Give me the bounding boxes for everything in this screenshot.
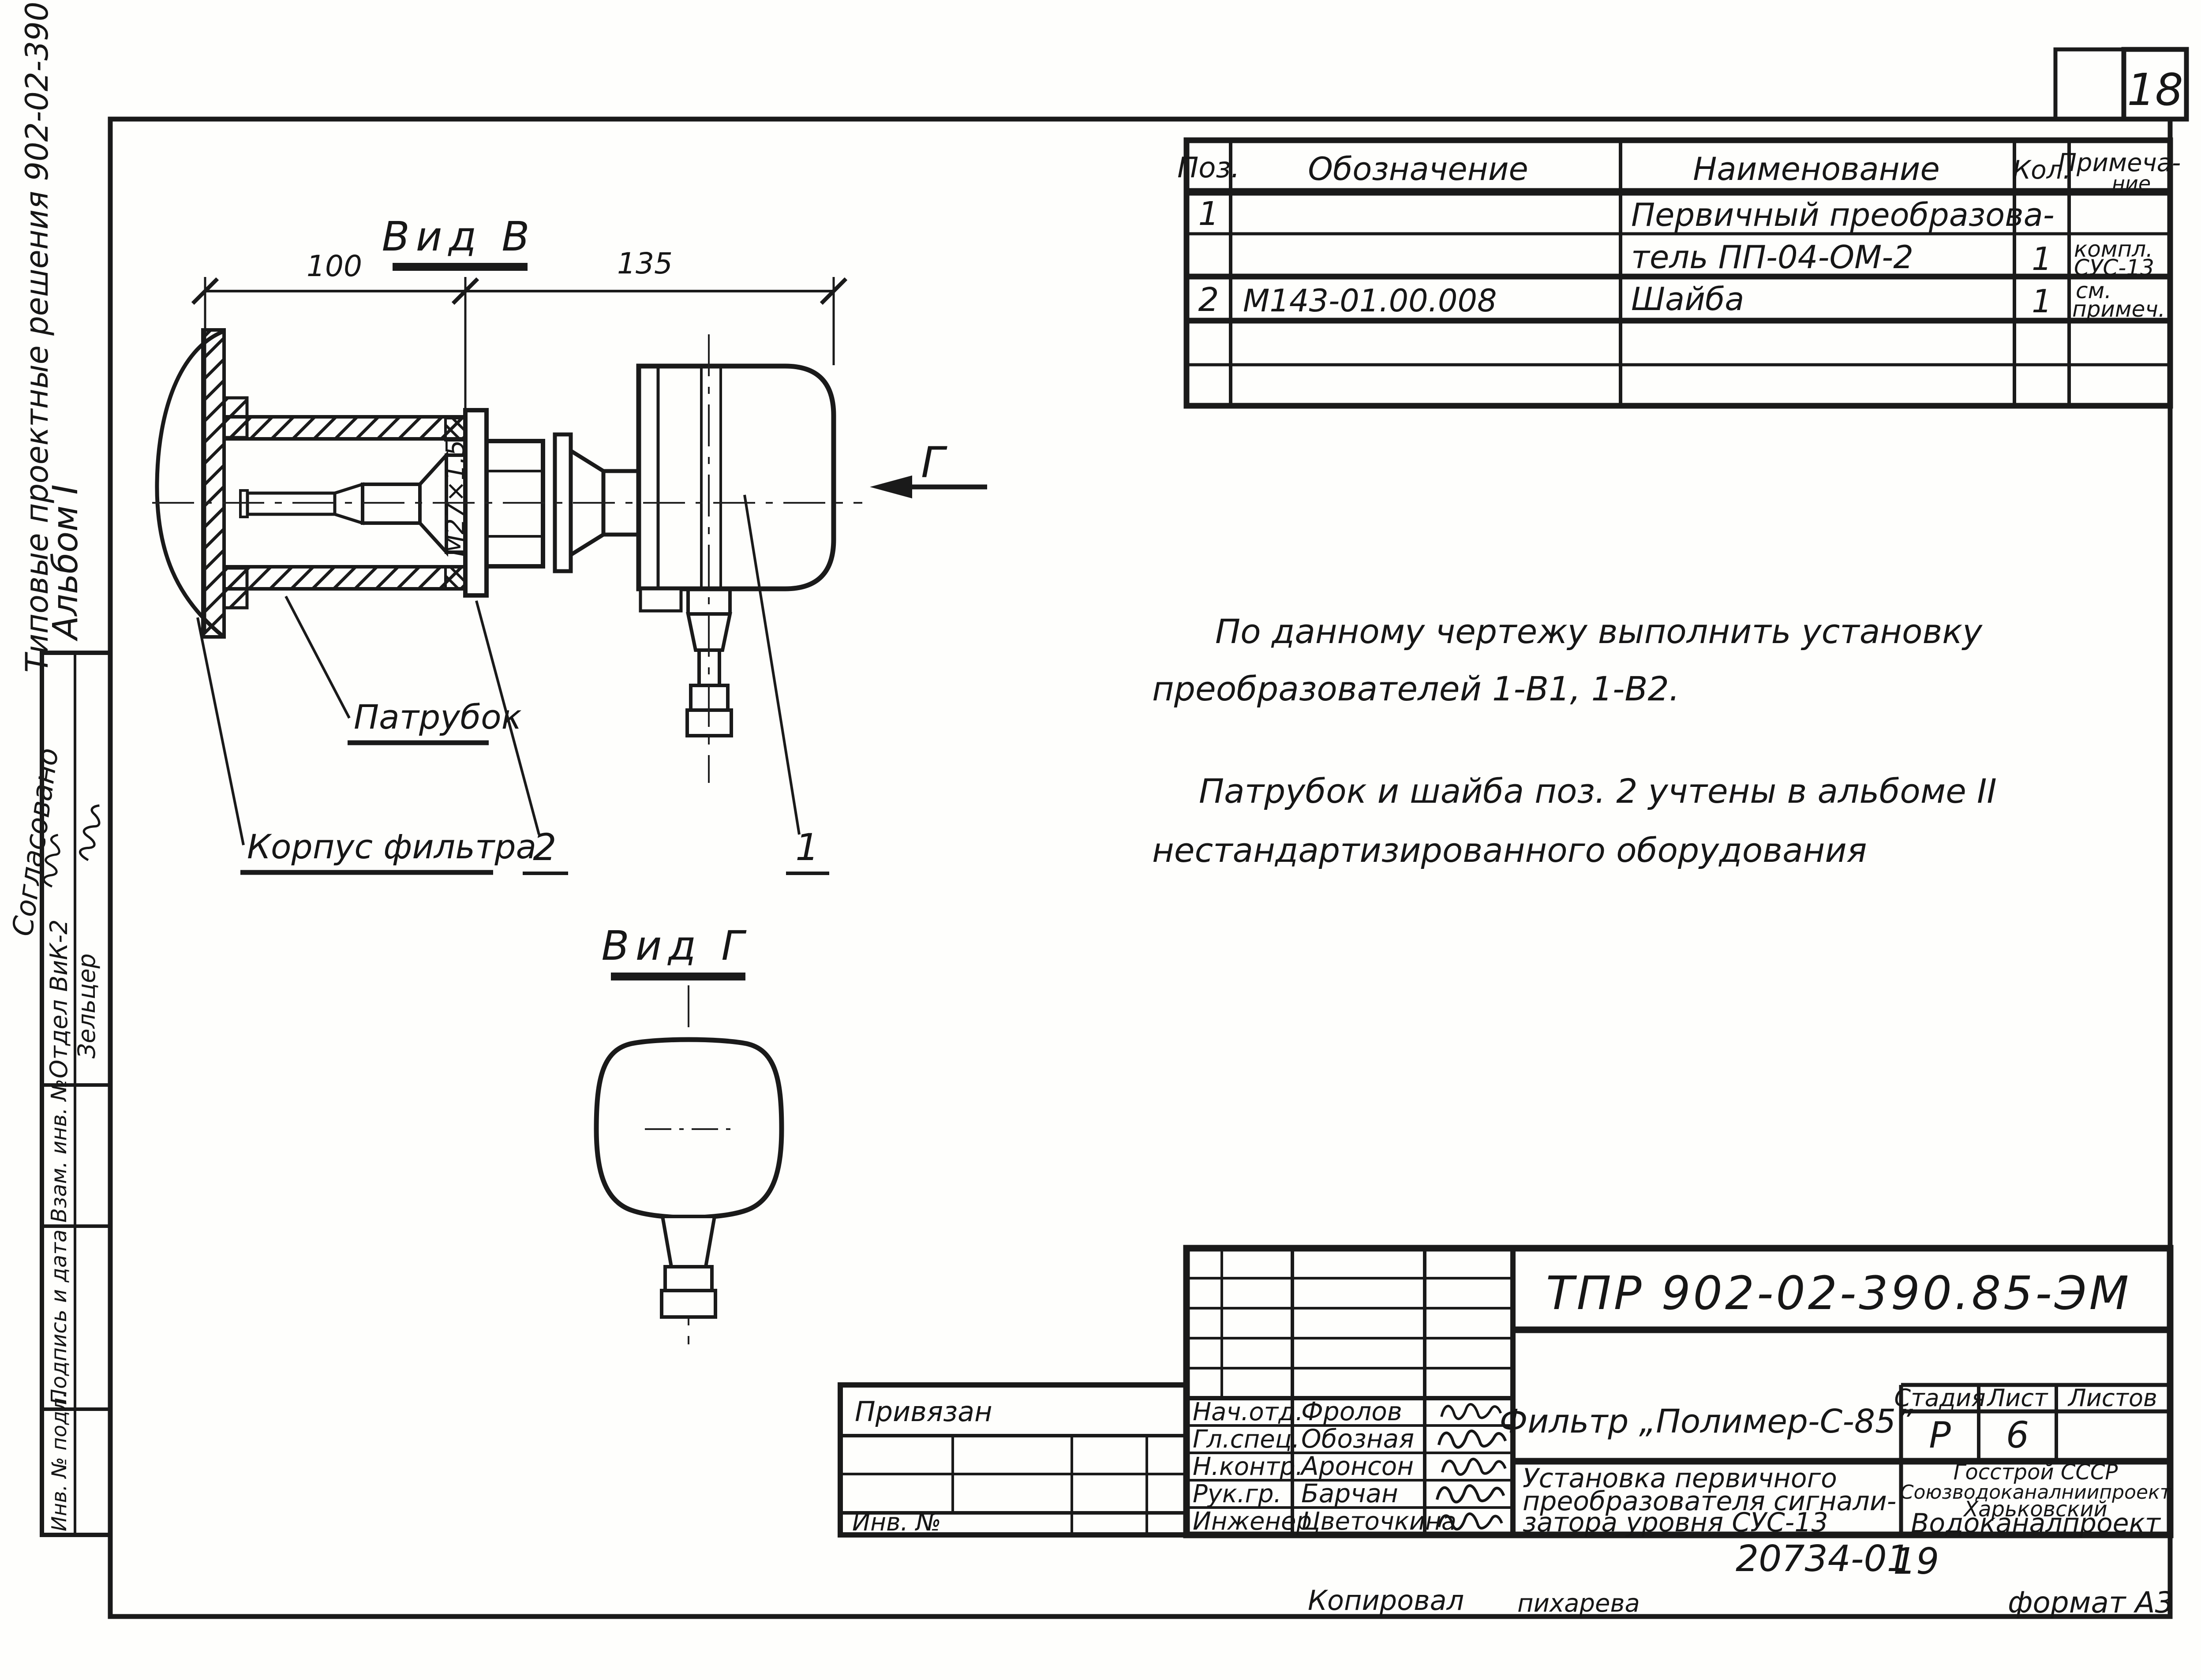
dept-person-name: Зельцер xyxy=(73,954,101,1059)
staff-role-4: Инженер xyxy=(1193,1507,1312,1536)
filter-wall xyxy=(203,330,224,637)
col-header-designation: Обозначение xyxy=(1308,150,1528,187)
table-row: 1 Первичный преобразова- xyxy=(1198,195,2054,233)
blueprint-canvas: 18 Поз. Обозначение Наименование Кол. Пр… xyxy=(0,0,2201,1680)
footer: 20734-01 19 Копировал пихарева формат А3 xyxy=(1308,1538,2174,1620)
signature xyxy=(1439,1431,1505,1447)
dept-label: Отдел ВиК-2 xyxy=(45,919,73,1078)
note-line-4: нестандартизированного оборудования xyxy=(1152,831,1867,870)
staff-name-2: Аронсон xyxy=(1299,1451,1414,1481)
transducer-body xyxy=(639,366,834,589)
row2-note-2: СУС-13 xyxy=(2074,255,2154,281)
col-header-note-2: ние xyxy=(2112,172,2151,195)
page-number-box: 18 xyxy=(2055,49,2186,119)
copied-by-name: пихарева xyxy=(1517,1589,1640,1618)
copied-label: Копировал xyxy=(1308,1584,1464,1616)
footer-sheet-number: 19 xyxy=(1893,1541,1939,1583)
stage-value: Р xyxy=(1929,1414,1951,1456)
row1-pos: 1 xyxy=(1198,195,1219,233)
title-block: ТПР 902-02-390.85-ЭМ Нач.отд. Фролов Гл.… xyxy=(1187,1248,2172,1539)
dim-135: 135 xyxy=(617,247,673,281)
col-header-name: Наименование xyxy=(1693,150,1940,187)
page-number: 18 xyxy=(2127,64,2183,116)
staff-name-0: Фролов xyxy=(1301,1396,1402,1426)
staff-row: Н.контр. Аронсон xyxy=(1193,1451,1505,1481)
row3-pos: 2 xyxy=(1198,281,1219,319)
transducer-head-front xyxy=(596,1040,782,1218)
album-caption: Альбом I xyxy=(46,484,86,642)
signature xyxy=(1442,1459,1505,1474)
view-direction-marker: Г xyxy=(870,438,987,498)
row1-name: Первичный преобразова- xyxy=(1631,196,2055,233)
row3-designation: М143-01.00.008 xyxy=(1243,283,1497,319)
notes: По данному чертежу выполнить установку п… xyxy=(1152,612,1997,870)
row2-qty: 1 xyxy=(2032,240,2052,277)
table-row: 2 М143-01.00.008 Шайба 1 см. примеч. xyxy=(1198,278,2165,322)
note-line-3: Патрубок и шайба поз. 2 учтены в альбоме… xyxy=(1199,771,1997,811)
staff-name-4: Цветочкина xyxy=(1301,1507,1456,1536)
description-line-3: затора уровня СУС-13 xyxy=(1523,1507,1828,1538)
staff-role-0: Нач.отд. xyxy=(1193,1398,1303,1426)
row2-name: тель ПП-04-ОМ-2 xyxy=(1631,239,1913,276)
housing-label: Корпус фильтра xyxy=(247,827,536,866)
staff-role-1: Гл.спец. xyxy=(1193,1425,1300,1454)
format-label: формат А3 xyxy=(2008,1586,2174,1620)
staff-name-1: Обозная xyxy=(1301,1424,1414,1454)
staff-role-2: Н.контр. xyxy=(1193,1452,1303,1481)
footer-doc-number: 20734-01 xyxy=(1736,1538,1910,1580)
dim-100: 100 xyxy=(307,249,362,283)
drawing-sheet: 18 Поз. Обозначение Наименование Кол. Пр… xyxy=(0,0,2201,1680)
staff-row: Рук.гр. Барчан xyxy=(1193,1478,1504,1508)
view-g-title: Вид Г xyxy=(601,922,750,969)
pipe-label: Патрубок xyxy=(354,697,522,737)
sign-date-label: Подпись и дата xyxy=(47,1229,71,1405)
note-line-1: По данному чертежу выполнить установку xyxy=(1215,612,1983,651)
agreed-label: Согласовано xyxy=(7,746,65,938)
item-2-callout: 2 xyxy=(533,826,556,869)
staff-row: Инженер Цветочкина xyxy=(1193,1507,1502,1536)
sheet-value: 6 xyxy=(2006,1414,2029,1456)
view-b-title: Вид В xyxy=(382,213,536,260)
signature xyxy=(1437,1485,1504,1502)
inv-orig-label: Инв. № подл. xyxy=(47,1392,71,1531)
stage-label: Стадия xyxy=(1894,1384,1985,1412)
view-direction-label: Г xyxy=(921,438,947,487)
doc-number: ТПР 902-02-390.85-ЭМ xyxy=(1546,1266,2131,1320)
signature xyxy=(77,803,105,861)
pipe-wall-top xyxy=(224,417,465,439)
sheet-label: Лист xyxy=(1987,1384,2048,1412)
arrowhead xyxy=(870,475,912,498)
org-line-4: Водоканалпроект xyxy=(1911,1508,2161,1539)
left-margin: Типовые проектные решения 902-02-390.85 … xyxy=(7,0,110,1535)
staff-row: Гл.спец. Обозная xyxy=(1193,1424,1505,1454)
staff-row: Нач.отд. Фролов xyxy=(1193,1396,1501,1426)
note-line-2: преобразователей 1-В1, 1-В2. xyxy=(1152,669,1680,708)
row3-name: Шайба xyxy=(1631,281,1744,318)
view-g: Вид Г xyxy=(596,922,782,1344)
project-name: Фильтр „Полимер-С-85” xyxy=(1500,1403,1913,1441)
row3-note-2: примеч. xyxy=(2072,296,2165,322)
parts-table: Поз. Обозначение Наименование Кол. Приме… xyxy=(1177,140,2181,406)
view-b: Вид В 100 135 М27×1,5 xyxy=(152,213,987,873)
sheets-label: Листов xyxy=(2067,1384,2157,1412)
staff-name-3: Барчан xyxy=(1301,1478,1398,1508)
attached-label: Привязан xyxy=(855,1396,992,1428)
pipe-wall-bottom xyxy=(224,567,465,589)
table-row: тель ПП-04-ОМ-2 1 компл. СУС-13 xyxy=(1631,236,2154,281)
signature xyxy=(1441,1404,1501,1419)
inv-number-label: Инв. № xyxy=(852,1508,941,1536)
replace-inv-label: Взам. инв. № xyxy=(47,1079,71,1223)
col-header-pos: Поз. xyxy=(1177,152,1240,184)
row3-qty: 1 xyxy=(2032,283,2052,320)
staff-role-3: Рук.гр. xyxy=(1193,1480,1281,1508)
attachment-block: Привязан Инв. № xyxy=(840,1385,1187,1536)
item-1-callout: 1 xyxy=(795,826,819,869)
